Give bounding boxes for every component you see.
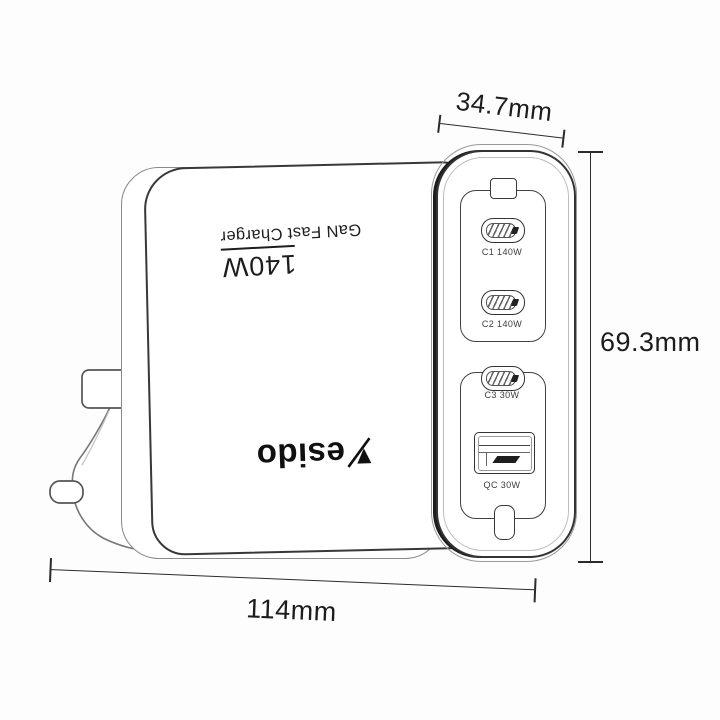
plug-pin-bottom [50, 481, 83, 503]
yesido-logo: esido [263, 432, 372, 476]
port-label-c2: C2 140W [460, 319, 544, 329]
charger-port-face: C1 140W C2 140W C3 30W QC 30W [436, 150, 576, 558]
yesido-y-mark-icon [345, 437, 372, 468]
usb-c-port-c2 [481, 290, 525, 315]
usb-c-port-c1 [481, 218, 525, 243]
port-label-qc: QC 30W [460, 480, 544, 490]
yesido-logo-text: esido [256, 435, 346, 474]
product-dimension-diagram: 140W GaN Fast Charger esido C1 140W C2 1… [0, 0, 720, 720]
clip-tab-bottom [494, 505, 515, 540]
dimension-top-width: 34.7mm [437, 84, 569, 148]
charger-print: 140W GaN Fast Charger [220, 219, 365, 282]
usb-a-divider [486, 452, 487, 466]
usb-c-port-c3 [481, 366, 525, 391]
usb-a-tongue-line [479, 445, 530, 446]
print-wattage: 140W [221, 249, 297, 283]
clip-tab-top [490, 178, 517, 199]
usb-a-port-qc [474, 432, 535, 474]
dimension-height-label: 69.3mm [600, 327, 701, 358]
usb-a-contact-mark [493, 456, 521, 463]
port-label-c1: C1 140W [460, 247, 544, 257]
dimension-bottom-width-label: 114mm [246, 593, 338, 628]
port-label-c3: C3 30W [460, 390, 544, 400]
